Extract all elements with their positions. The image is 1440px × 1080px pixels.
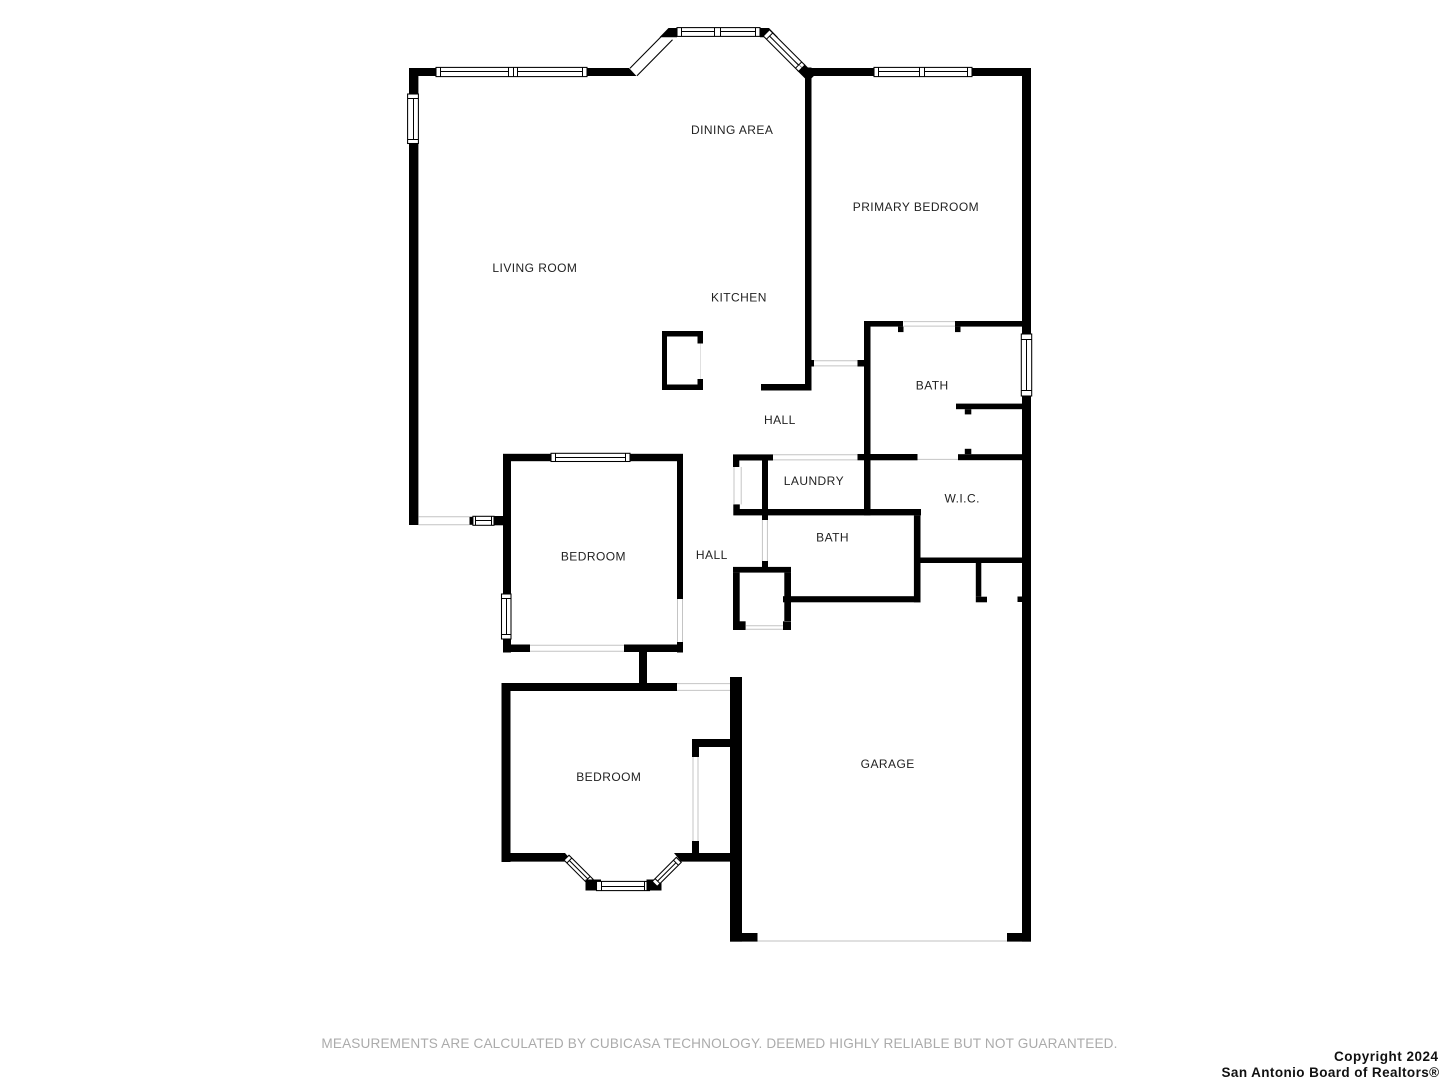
svg-text:HALL: HALL — [696, 548, 728, 562]
svg-text:GARAGE: GARAGE — [861, 757, 915, 771]
svg-text:LIVING ROOM: LIVING ROOM — [492, 261, 577, 275]
svg-text:LAUNDRY: LAUNDRY — [784, 474, 844, 488]
svg-text:W.I.C.: W.I.C. — [945, 492, 980, 506]
svg-text:BEDROOM: BEDROOM — [561, 550, 626, 564]
svg-text:BATH: BATH — [916, 379, 949, 393]
svg-text:PRIMARY BEDROOM: PRIMARY BEDROOM — [853, 200, 979, 214]
svg-text:BATH: BATH — [816, 530, 849, 544]
svg-text:Copyright 2024: Copyright 2024 — [1334, 1049, 1439, 1064]
svg-text:KITCHEN: KITCHEN — [711, 290, 767, 304]
svg-text:DINING AREA: DINING AREA — [691, 123, 773, 137]
svg-text:HALL: HALL — [764, 413, 796, 427]
svg-text:San Antonio Board of Realtors®: San Antonio Board of Realtors® — [1222, 1065, 1440, 1080]
svg-text:MEASUREMENTS ARE CALCULATED BY: MEASUREMENTS ARE CALCULATED BY CUBICASA … — [321, 1036, 1117, 1051]
svg-text:BEDROOM: BEDROOM — [576, 770, 641, 784]
